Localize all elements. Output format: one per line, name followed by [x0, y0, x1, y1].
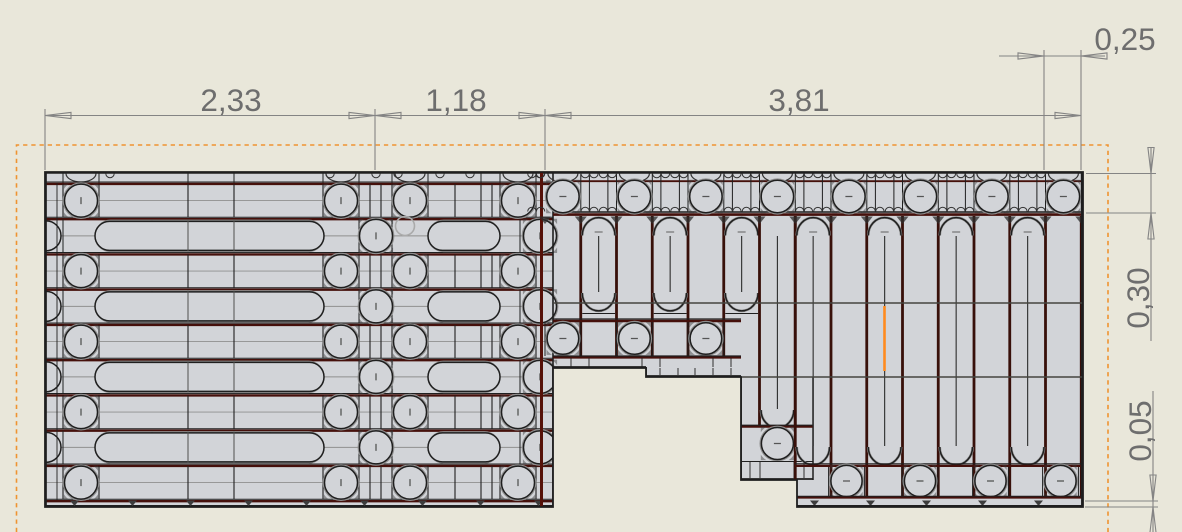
svg-text:1,18: 1,18	[425, 82, 486, 118]
svg-text:2,33: 2,33	[200, 82, 261, 118]
svg-text:0,05: 0,05	[1122, 400, 1158, 461]
svg-text:0,30: 0,30	[1120, 267, 1156, 328]
svg-text:3,81: 3,81	[768, 82, 829, 118]
svg-text:0,25: 0,25	[1094, 21, 1155, 57]
